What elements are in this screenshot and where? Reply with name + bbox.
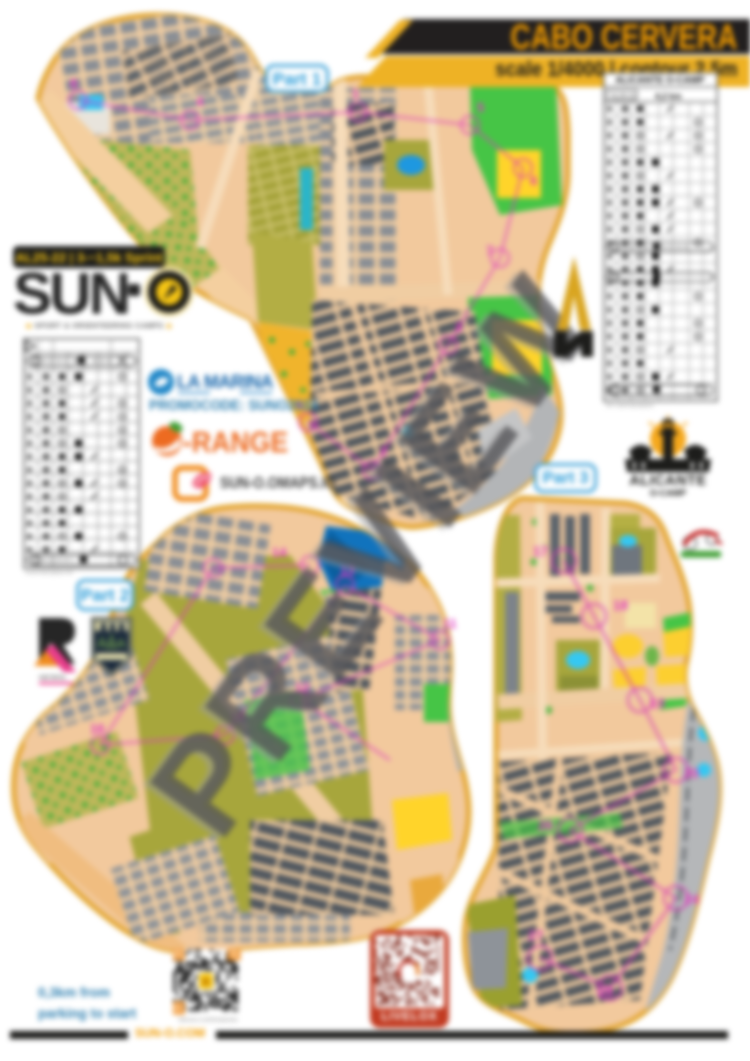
svg-text:19: 19	[650, 696, 665, 711]
svg-text:6: 6	[530, 173, 537, 188]
svg-text:26: 26	[538, 818, 554, 833]
svg-text:LA MARINA: LA MARINA	[177, 372, 273, 392]
svg-text:O-CAMP: O-CAMP	[650, 488, 687, 498]
svg-text:AL25-22: AL25-22	[611, 93, 636, 100]
svg-text:16: 16	[90, 721, 104, 736]
svg-text:27: 27	[528, 928, 543, 943]
svg-text:7: 7	[486, 243, 493, 258]
svg-text:18: 18	[613, 598, 629, 613]
svg-text:-RANGE: -RANGE	[183, 426, 288, 458]
svg-text:SUN-O.OMAPS.IO: SUN-O.OMAPS.IO	[220, 475, 336, 492]
svg-text:R: R	[202, 977, 210, 989]
svg-text:ALICANTE: ALICANTE	[629, 473, 706, 489]
svg-text:ALICANTE O-CAMP: ALICANTE O-CAMP	[615, 75, 705, 86]
svg-text:20: 20	[684, 766, 699, 781]
svg-text:24: 24	[684, 892, 700, 907]
svg-text:29: 29	[598, 985, 613, 1000]
svg-text:4,2 km: 4,2 km	[655, 91, 682, 101]
svg-text:17: 17	[533, 544, 548, 559]
svg-text:nat terra: nat terra	[39, 674, 65, 681]
svg-text:11: 11	[443, 616, 457, 631]
